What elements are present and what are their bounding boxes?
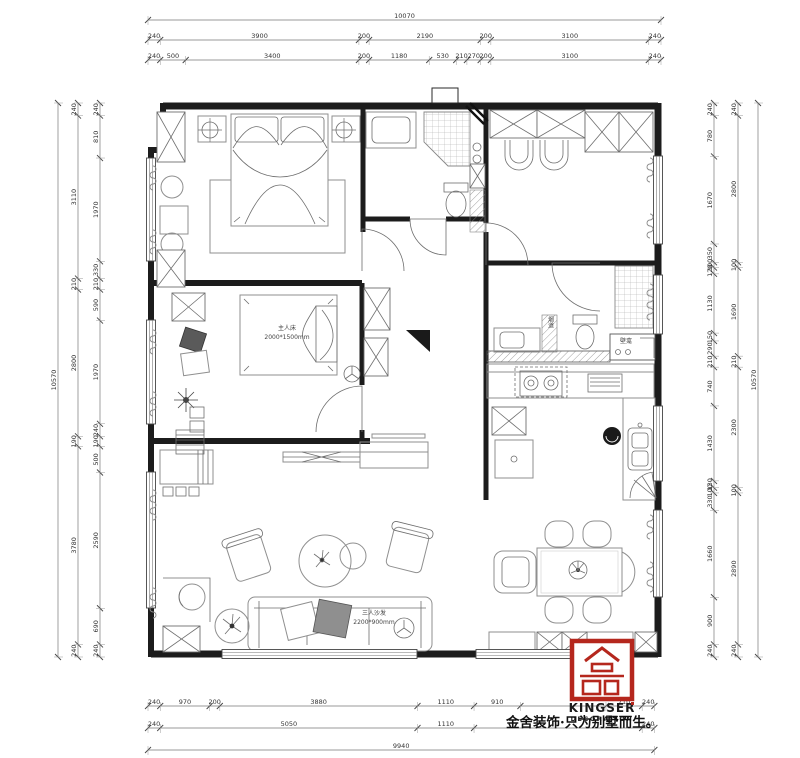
burner-2 — [544, 376, 558, 390]
dim-label: 1110 — [437, 698, 454, 706]
kitchen-counter-top — [487, 364, 654, 398]
dim-label: 3880 — [310, 698, 327, 706]
xbox-cabinet-icon — [619, 112, 653, 152]
dish-rack — [630, 472, 656, 498]
room-study — [505, 140, 568, 170]
dim-label: 1970 — [92, 364, 100, 381]
sink-bowl-2 — [632, 451, 648, 466]
dim-chain-right_inner: 2407801670350100120113015029021074014301… — [706, 100, 719, 660]
dim-label: 350 — [706, 247, 714, 259]
window — [147, 158, 156, 261]
bed2-label-1: 主人床 — [278, 324, 296, 332]
dim-label: 910 — [491, 698, 503, 706]
dim-label: 240 — [92, 644, 100, 656]
sofa-pillow-light — [281, 602, 320, 641]
xbox-cabinet-icon — [537, 632, 562, 652]
xbox-cabinet-icon — [470, 164, 485, 188]
faucet-knob-2 — [473, 155, 481, 163]
window-frame — [654, 510, 663, 597]
dressing-table — [160, 206, 188, 234]
window-frame — [654, 275, 663, 334]
sofa-label-2: 2200*900mm — [353, 619, 395, 626]
brand-slogan: 金舍装饰·只为别墅而生。 — [505, 714, 659, 731]
burner-1 — [524, 376, 538, 390]
window-frame — [147, 158, 156, 261]
desk-corner — [163, 578, 210, 622]
xbox-cabinet-icon — [157, 112, 185, 162]
radiator-icon — [647, 562, 653, 592]
dim-label: 500 — [167, 52, 179, 60]
dim-label: 240 — [706, 644, 714, 656]
logo-name: KINGSER — [569, 701, 636, 715]
dim-label: 10570 — [750, 370, 758, 391]
dining-chair-bottom-2 — [583, 597, 611, 623]
dim-label: 690 — [92, 620, 100, 632]
dim-label: 1670 — [706, 192, 714, 209]
radiator-icon — [647, 214, 653, 238]
armchair-2 — [382, 521, 434, 575]
dim-label: 810 — [92, 131, 100, 143]
xbox-cabinet-icon — [492, 407, 526, 435]
basin2-bowl — [500, 332, 524, 348]
dim-label: 200 — [209, 698, 221, 706]
dim-label: 5050 — [281, 720, 298, 728]
dim-label: 240 — [642, 698, 654, 706]
armchair-1 — [221, 528, 275, 584]
dim-label: 1970 — [92, 201, 100, 218]
hall-box-1 — [190, 407, 204, 418]
door-study — [486, 223, 528, 265]
dim-label: 210 — [455, 52, 467, 60]
dim-label: 240 — [70, 644, 78, 656]
xbox-cabinet-icon — [163, 626, 200, 652]
window-frame — [222, 650, 417, 659]
dim-label: 3900 — [251, 32, 268, 40]
dim-label: 2890 — [730, 560, 738, 577]
dim-label: 2190 — [417, 32, 434, 40]
dim-label: 290 — [706, 342, 714, 354]
dim-label: 240 — [706, 103, 714, 115]
door-sliding-leaf — [372, 434, 425, 438]
dim-label: 210 — [70, 278, 78, 290]
floorplan-drawing: 主人床 2000*1500mm 烟道 — [0, 0, 800, 758]
desk-chair-dark — [179, 327, 206, 353]
dim-label: 200 — [358, 32, 370, 40]
window — [654, 406, 663, 481]
dim-label: 2800 — [70, 355, 78, 372]
sink — [628, 428, 652, 470]
dim-label: 240 — [148, 52, 160, 60]
chair-hanging-1 — [505, 140, 533, 170]
dim-label: 3110 — [70, 189, 78, 206]
dim-label: 240 — [70, 103, 78, 115]
room-bathroom2: 烟道 壁龛 — [494, 266, 655, 360]
toilet-bowl — [446, 191, 466, 217]
dim-label: 240 — [649, 32, 661, 40]
dim-chain-top_row2: 240390020021902003100240 — [145, 32, 664, 45]
door-bath2 — [552, 263, 600, 311]
dressing-stool-top — [161, 176, 183, 198]
ceiling-fan-icon — [344, 366, 360, 382]
sideboard-left — [489, 632, 535, 652]
dim-label: 530 — [437, 52, 449, 60]
dim-label: 190 — [92, 435, 100, 447]
column-solid — [406, 330, 430, 352]
dim-label: 3100 — [562, 52, 579, 60]
dim-label: 2800 — [730, 181, 738, 198]
dim-label: 2300 — [730, 419, 738, 436]
plumbing-wall-hatch — [470, 190, 485, 232]
dining-chair-right — [622, 552, 635, 592]
sink-faucet — [638, 423, 642, 427]
dim-label: 500 — [92, 453, 100, 465]
dim-chain-right_overall: 10570 — [750, 100, 763, 660]
dim-chain-top_overall: 10070 — [145, 12, 664, 25]
dining-chair-top-1 — [545, 521, 573, 547]
wall-kitchen-hatched — [487, 351, 610, 362]
xbox-cabinet-icon — [364, 288, 390, 330]
toilet2-bowl — [576, 325, 594, 349]
room-master-bedroom — [160, 114, 360, 255]
coffee-plant-icon — [314, 550, 330, 567]
door-bedroom1 — [362, 229, 404, 271]
dim-label: 1110 — [437, 720, 454, 728]
dim-label: 240 — [148, 720, 160, 728]
door-bedroom2 — [316, 386, 362, 432]
dim-label: 3100 — [562, 32, 579, 40]
window — [654, 275, 663, 334]
dim-label: 3400 — [264, 52, 281, 60]
tv-console — [360, 442, 428, 468]
burner-1-inner — [528, 380, 534, 386]
window — [654, 156, 663, 244]
dim-label: 1430 — [706, 435, 714, 452]
window — [654, 510, 663, 597]
flue-label: 烟道 — [547, 315, 554, 329]
dim-chain-right_outer: 2402800100169021023001002890240 — [730, 100, 743, 660]
window — [147, 472, 156, 608]
dim-label: 190 — [70, 435, 78, 447]
dim-chain-top_row3: 240500340020011805302102702003100240 — [145, 52, 664, 65]
side-plant-table — [215, 609, 249, 643]
dim-label: 200 — [480, 52, 492, 60]
chair-hanging-2 — [540, 140, 568, 170]
dining-armchair-left — [494, 551, 536, 593]
tv-icon — [283, 452, 360, 462]
dim-label: 1690 — [730, 304, 738, 321]
radiator-icon — [647, 515, 653, 539]
dining-chair-bottom-1 — [545, 597, 573, 623]
window-frame — [654, 406, 663, 481]
dim-label: 10070 — [394, 12, 415, 20]
dim-label: 590 — [92, 299, 100, 311]
faucet-knob-1 — [473, 143, 481, 151]
desk-seat — [181, 350, 210, 375]
dim-label: 200 — [480, 32, 492, 40]
refrigerator-mark — [511, 456, 517, 462]
coffee-table-large — [299, 535, 351, 587]
stove — [520, 371, 562, 396]
dim-label: 780 — [706, 130, 714, 142]
dim-label: 1130 — [706, 295, 714, 312]
dim-label: 1660 — [706, 545, 714, 562]
dining-chair-top-2 — [583, 521, 611, 547]
bed-master — [231, 114, 328, 226]
dining-table — [537, 548, 622, 596]
sofa-pillow-dark — [313, 599, 352, 638]
dim-label: 970 — [179, 698, 191, 706]
shower-area — [424, 112, 470, 166]
cabinet-piano — [160, 450, 213, 496]
dim-label: 330 — [92, 264, 100, 276]
xbox-cabinet-icon — [635, 632, 657, 652]
dim-label: 9940 — [393, 742, 410, 750]
dim-label: 2590 — [92, 532, 100, 549]
dim-label: 740 — [706, 380, 714, 392]
dim-label: 900 — [706, 615, 714, 627]
burner-2-inner — [548, 380, 554, 386]
dim-label: 1180 — [391, 52, 408, 60]
door-bath1 — [410, 219, 446, 255]
flue-bump — [432, 88, 458, 103]
dim-label: 100 — [730, 259, 738, 271]
dim-label: 200 — [358, 52, 370, 60]
dim-label: 210 — [706, 355, 714, 367]
window-frame — [654, 156, 663, 244]
kingser-seal-icon — [572, 641, 632, 699]
dim-chain-left_outer: 240311021028001903780240 — [70, 100, 83, 660]
window-frame — [147, 472, 156, 608]
dim-label: 240 — [730, 103, 738, 115]
dim-label: 210 — [92, 278, 100, 290]
vent-grille — [588, 374, 622, 392]
coffee-table-small — [340, 543, 366, 569]
dim-label: 100 — [706, 484, 714, 496]
dim-label: 270 — [468, 52, 480, 60]
dim-label: 210 — [730, 355, 738, 367]
xbox-cabinet-icon — [585, 112, 619, 152]
dim-chain-bottom_overall: 9940 — [145, 742, 657, 755]
sink-bowl-1 — [632, 433, 648, 448]
xbox-cabinet-icon — [172, 293, 205, 321]
sofa-label-1: 三人沙发 — [362, 609, 386, 617]
dim-chain-left_inner: 2408101970330210590197024019050025906902… — [92, 100, 105, 660]
doors — [316, 219, 600, 438]
dim-label: 240 — [649, 52, 661, 60]
dim-chain-left_overall: 10570 — [50, 100, 63, 660]
pendant-light-icon — [174, 388, 198, 412]
niche-label: 壁龛 — [620, 337, 632, 345]
toilet2-tank — [573, 315, 597, 324]
dim-label: 240 — [92, 424, 100, 436]
xbox-cabinet-icon — [537, 110, 585, 138]
logo-mark — [631, 702, 634, 705]
floorplan-page: 主人床 2000*1500mm 烟道 — [0, 0, 800, 758]
dim-label: 240 — [148, 32, 160, 40]
dim-label: 240 — [730, 644, 738, 656]
bed2-label-2: 2000*1500mm — [264, 334, 309, 341]
xbox-cabinet-icon — [364, 338, 388, 376]
xbox-cabinet-icon — [490, 110, 537, 138]
dim-label: 150 — [706, 331, 714, 343]
dim-label: 3780 — [70, 537, 78, 554]
refrigerator — [495, 440, 533, 478]
radiator-icon — [647, 158, 653, 182]
dim-label: 120 — [706, 265, 714, 277]
room-living: 三人沙发 2200*900mm — [160, 450, 434, 651]
dim-label: 330 — [706, 495, 714, 507]
vanity-basin — [372, 117, 410, 143]
dim-label: 240 — [92, 103, 100, 115]
dim-label: 100 — [730, 484, 738, 496]
xbox-cabinet-icon — [157, 250, 185, 287]
dim-label: 10570 — [50, 370, 58, 391]
dim-label: 240 — [148, 698, 160, 706]
window — [222, 650, 417, 659]
